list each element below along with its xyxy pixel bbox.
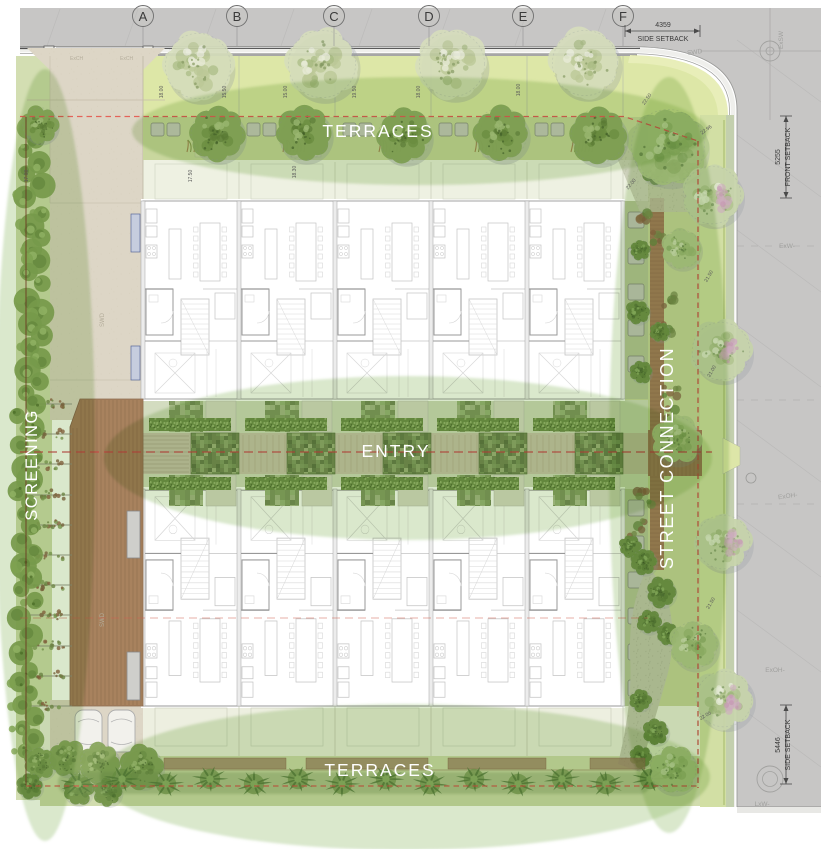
svg-text:TERRACES: TERRACES: [322, 121, 433, 141]
svg-text:5255: 5255: [775, 149, 782, 165]
svg-text:FRONT SETBACK: FRONT SETBACK: [785, 127, 792, 186]
svg-text:A: A: [139, 9, 148, 24]
svg-text:SWD: SWD: [100, 612, 106, 627]
svg-text:18.30: 18.30: [292, 166, 298, 179]
svg-text:ExW-: ExW-: [779, 243, 795, 250]
svg-text:ENTRY: ENTRY: [362, 441, 431, 461]
svg-text:4359: 4359: [655, 22, 671, 29]
svg-text:SWD: SWD: [100, 312, 106, 327]
svg-text:15.00: 15.00: [283, 86, 289, 99]
svg-text:TERRACES: TERRACES: [324, 760, 435, 780]
svg-text:B: B: [233, 9, 242, 24]
svg-text:SIDE SETBACK: SIDE SETBACK: [785, 719, 792, 770]
svg-text:19.50: 19.50: [352, 86, 358, 99]
svg-text:18.00: 18.00: [416, 86, 422, 99]
svg-text:D: D: [424, 9, 433, 24]
svg-text:18.00: 18.00: [516, 84, 522, 97]
svg-text:E: E: [519, 9, 528, 24]
svg-text:F: F: [619, 9, 627, 24]
svg-text:17.50: 17.50: [188, 170, 194, 183]
svg-text:17.00: 17.00: [24, 170, 30, 183]
svg-text:ExCH: ExCH: [70, 56, 83, 62]
svg-text:15.50: 15.50: [222, 86, 228, 99]
svg-text:SCREENING: SCREENING: [23, 409, 41, 521]
svg-text:LxW-: LxW-: [754, 801, 769, 808]
svg-text:ExCH: ExCH: [120, 56, 133, 62]
svg-text:18.00: 18.00: [159, 86, 165, 99]
svg-text:ExSW: ExSW: [778, 30, 785, 49]
svg-text:5446: 5446: [775, 737, 782, 753]
svg-text:ExOH-: ExOH-: [765, 667, 785, 674]
svg-text:STREET CONNECTION: STREET CONNECTION: [657, 347, 677, 569]
svg-text:SIDE SETBACK: SIDE SETBACK: [638, 36, 689, 43]
svg-text:C: C: [329, 9, 338, 24]
